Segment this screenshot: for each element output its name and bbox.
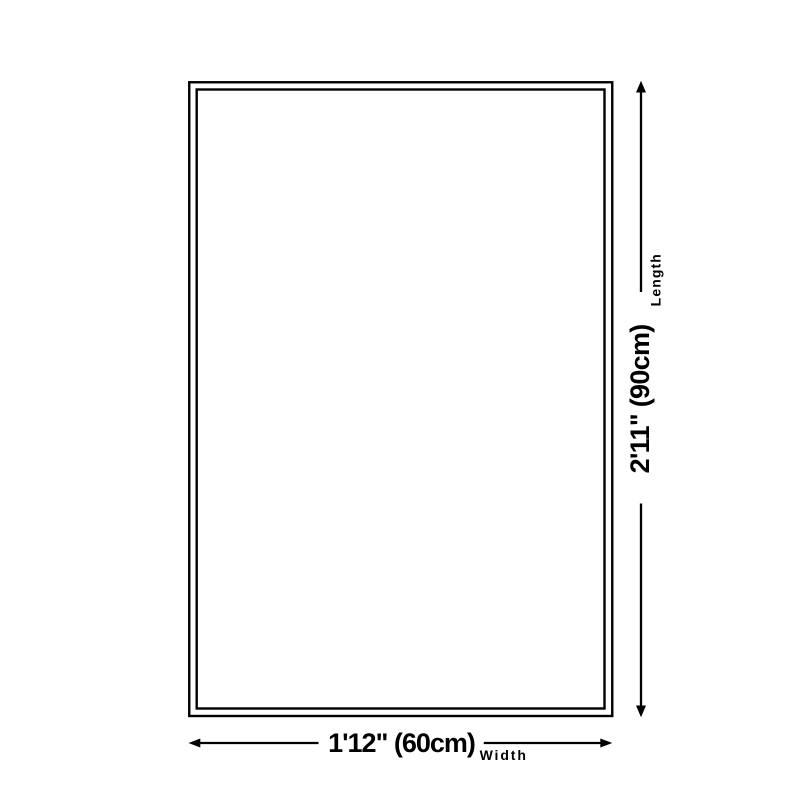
svg-text:2'11" (90cm): 2'11" (90cm) (625, 324, 655, 473)
svg-text:Width: Width (480, 747, 528, 763)
svg-text:1'12" (60cm): 1'12" (60cm) (328, 728, 475, 758)
svg-text:Length: Length (647, 253, 663, 306)
